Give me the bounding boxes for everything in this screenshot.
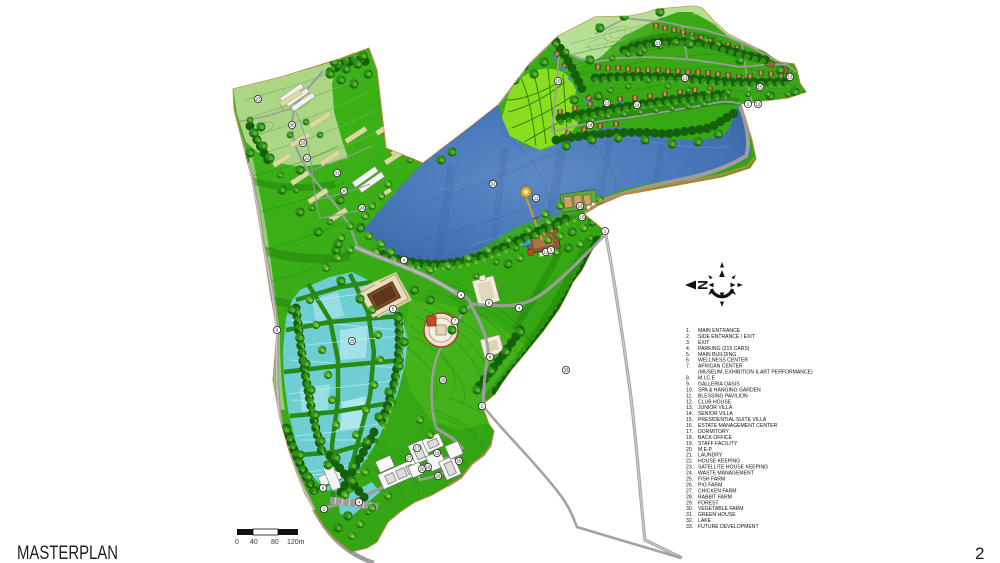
svg-text:19: 19	[435, 451, 440, 456]
svg-text:13: 13	[788, 75, 793, 80]
svg-text:22: 22	[305, 156, 310, 161]
svg-text:14: 14	[635, 103, 640, 108]
svg-text:33: 33	[564, 368, 569, 373]
svg-text:11: 11	[534, 196, 539, 201]
svg-text:20: 20	[420, 467, 425, 472]
svg-text:10: 10	[556, 79, 561, 84]
svg-text:0: 0	[235, 539, 239, 546]
svg-text:30: 30	[342, 189, 347, 194]
svg-text:25: 25	[350, 339, 355, 344]
svg-text:33.: 33.	[686, 524, 693, 530]
svg-text:31: 31	[335, 171, 340, 176]
svg-text:18: 18	[426, 465, 431, 470]
svg-text:13: 13	[656, 41, 661, 46]
svg-text:24: 24	[360, 206, 365, 211]
svg-text:13: 13	[683, 76, 688, 81]
svg-text:80: 80	[271, 539, 279, 546]
svg-text:16: 16	[578, 204, 583, 209]
svg-text:15: 15	[758, 85, 763, 90]
svg-text:FUTURE DEVELOPMENT: FUTURE DEVELOPMENT	[698, 524, 759, 530]
svg-text:14: 14	[588, 123, 593, 128]
svg-text:23: 23	[256, 97, 261, 102]
svg-text:MASTERPLAN: MASTERPLAN	[17, 542, 118, 563]
svg-text:26: 26	[436, 474, 441, 479]
svg-text:13: 13	[605, 101, 610, 106]
svg-text:17: 17	[415, 446, 420, 451]
svg-text:28: 28	[457, 459, 462, 464]
svg-text:2: 2	[975, 544, 984, 563]
svg-text:29: 29	[441, 378, 446, 383]
svg-text:120m: 120m	[287, 539, 305, 546]
svg-text:30: 30	[290, 123, 295, 128]
svg-text:32: 32	[491, 182, 496, 187]
svg-text:(MUSEUM, EXHIBITION & ART PERF: (MUSEUM, EXHIBITION & ART PERFORMANCE)	[698, 370, 813, 376]
svg-text:7.: 7.	[686, 364, 690, 370]
svg-text:29: 29	[301, 141, 306, 146]
svg-text:27: 27	[407, 456, 412, 461]
svg-text:N: N	[695, 280, 710, 290]
svg-text:12: 12	[756, 102, 761, 107]
svg-text:10: 10	[580, 215, 585, 220]
svg-text:40: 40	[250, 539, 258, 546]
